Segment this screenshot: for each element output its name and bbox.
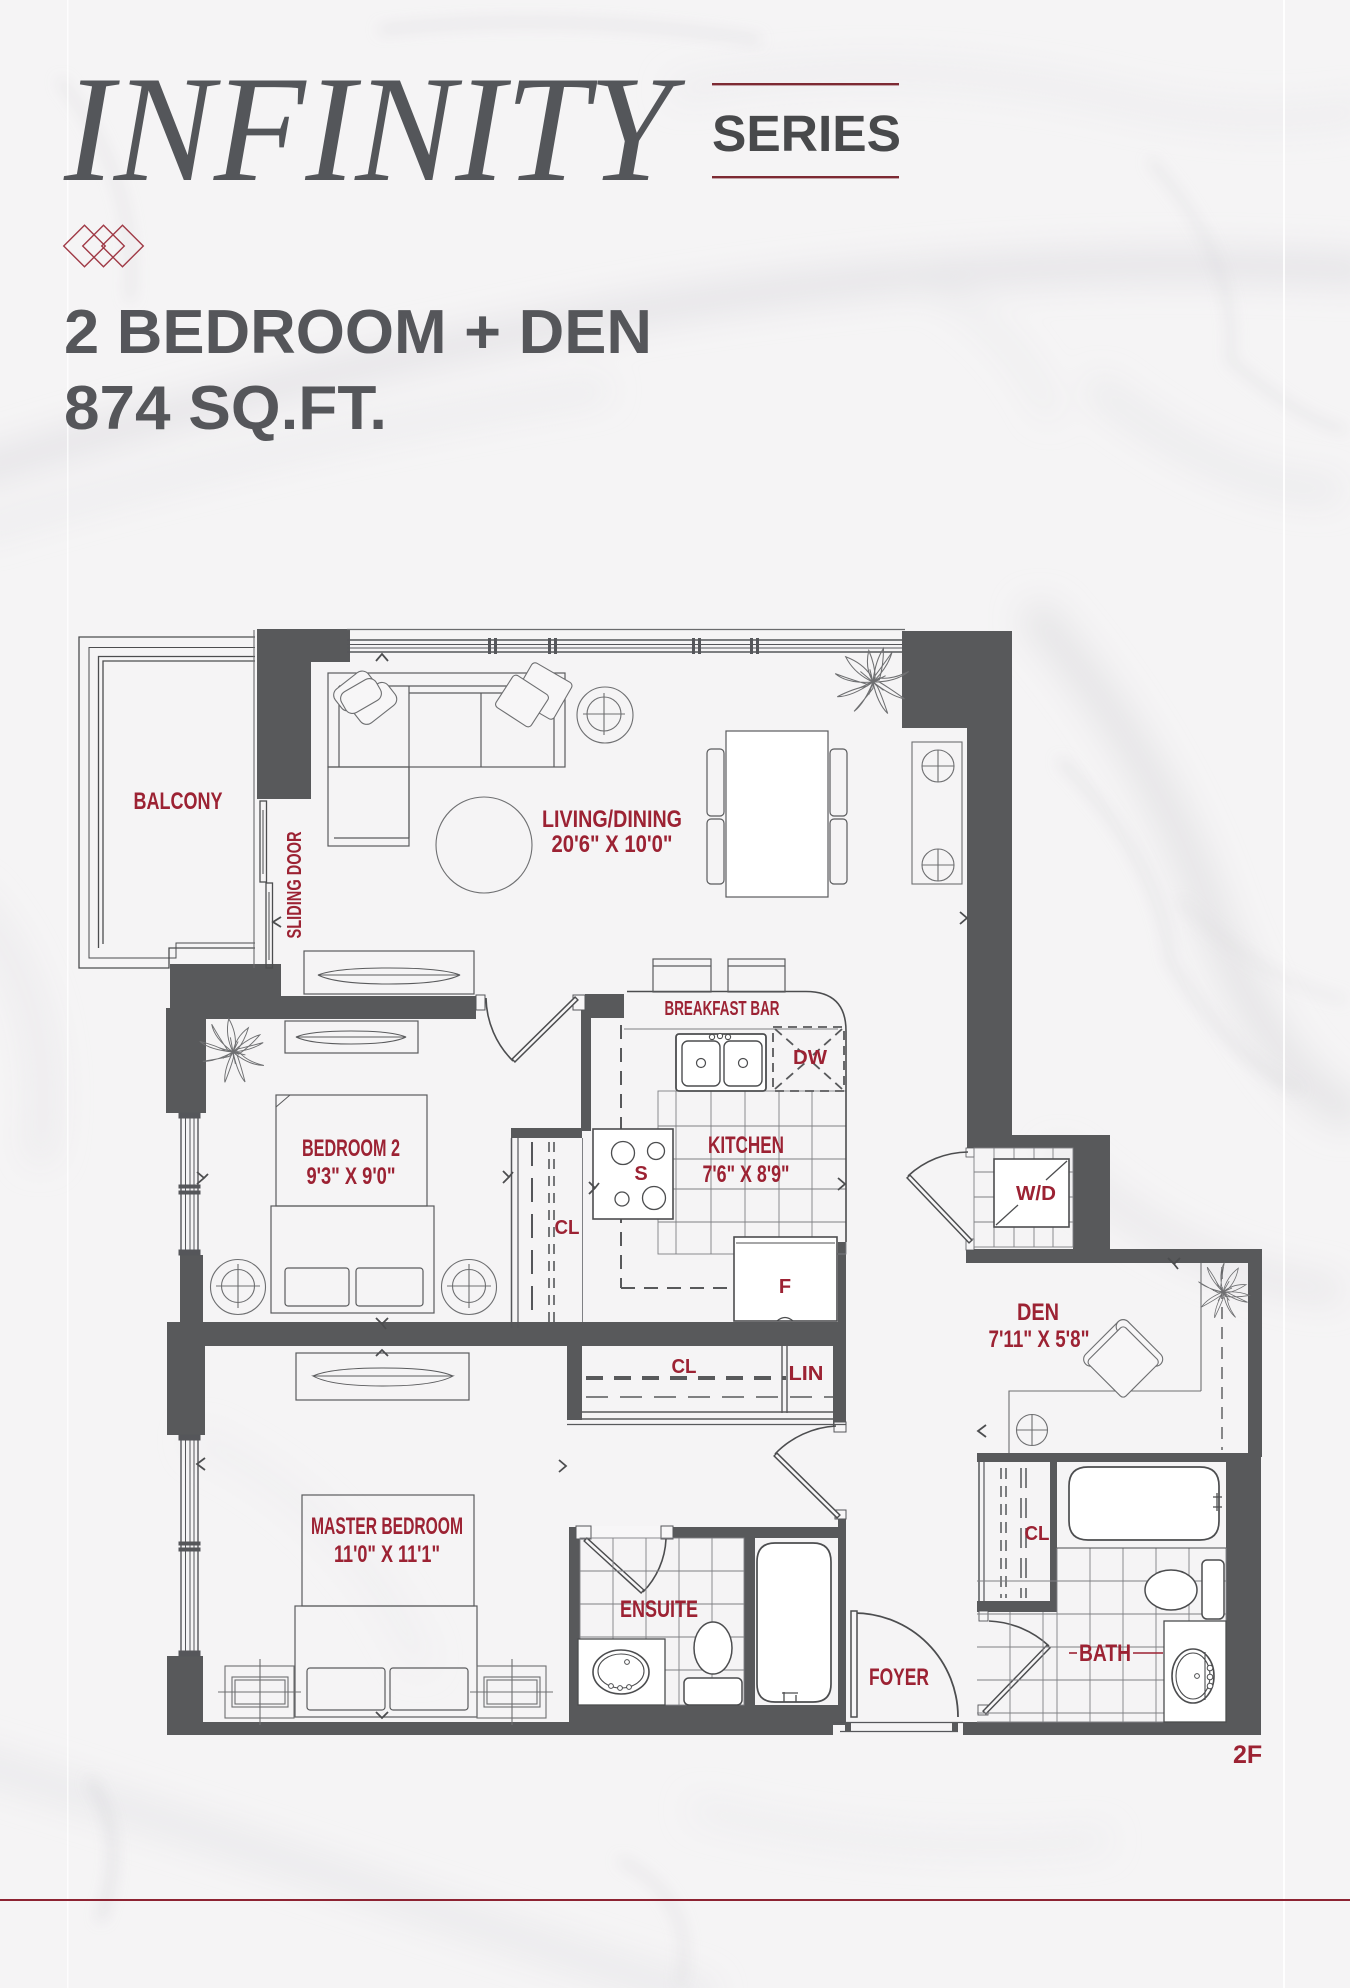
- svg-text:BREAKFAST BAR: BREAKFAST BAR: [665, 998, 780, 1020]
- svg-text:ENSUITE: ENSUITE: [620, 1596, 698, 1623]
- svg-text:LIVING/DINING: LIVING/DINING: [542, 806, 682, 833]
- svg-text:KITCHEN: KITCHEN: [708, 1132, 784, 1159]
- svg-text:W/D: W/D: [1016, 1183, 1056, 1205]
- svg-text:7'6" X 8'9": 7'6" X 8'9": [703, 1161, 790, 1188]
- svg-text:BALCONY: BALCONY: [134, 788, 223, 815]
- svg-text:SERIES: SERIES: [712, 105, 901, 162]
- svg-text:2 BEDROOM + DEN: 2 BEDROOM + DEN: [64, 298, 652, 367]
- svg-text:MASTER BEDROOM: MASTER BEDROOM: [311, 1513, 463, 1540]
- svg-text:BEDROOM 2: BEDROOM 2: [302, 1135, 400, 1162]
- svg-text:FOYER: FOYER: [869, 1664, 929, 1691]
- svg-text:INFINITY: INFINITY: [63, 45, 686, 213]
- svg-text:S: S: [634, 1163, 647, 1185]
- svg-text:F: F: [779, 1276, 791, 1298]
- svg-text:9'3" X 9'0": 9'3" X 9'0": [307, 1163, 396, 1190]
- svg-text:DW: DW: [793, 1047, 827, 1069]
- svg-text:CL: CL: [555, 1217, 580, 1239]
- svg-text:20'6" X 10'0": 20'6" X 10'0": [552, 831, 673, 858]
- svg-text:LIN: LIN: [789, 1363, 824, 1385]
- svg-text:CL: CL: [1025, 1523, 1050, 1545]
- svg-text:11'0" X 11'1": 11'0" X 11'1": [334, 1541, 440, 1568]
- svg-text:7'11" X 5'8": 7'11" X 5'8": [989, 1326, 1090, 1353]
- svg-text:CL: CL: [672, 1356, 697, 1378]
- svg-text:DEN: DEN: [1017, 1299, 1059, 1326]
- svg-text:BATH: BATH: [1079, 1640, 1131, 1667]
- svg-text:SLIDING DOOR: SLIDING DOOR: [284, 831, 306, 938]
- svg-text:2F: 2F: [1233, 1741, 1262, 1769]
- svg-text:874 SQ.FT.: 874 SQ.FT.: [64, 374, 387, 443]
